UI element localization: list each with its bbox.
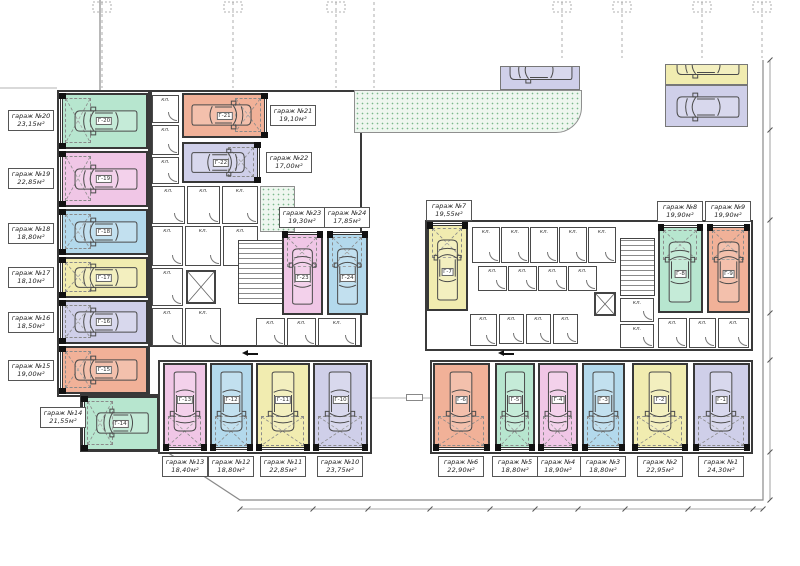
storage-room: кл. <box>152 308 183 346</box>
car-tag: Г-14 <box>112 419 128 427</box>
garage-name: гараж №24 <box>325 209 369 217</box>
garage-area: 19,90м² <box>706 211 750 219</box>
garage-stall-11: Г-11 <box>256 363 310 450</box>
garage-name: гараж №5 <box>493 458 537 466</box>
parking-floor-plan: кл.кл.кл.кл.кл.кл.кл.кл.кл.кл.кл.кл.кл.к… <box>0 0 800 566</box>
storage-room-label: кл. <box>153 127 178 133</box>
garage-label-10: гараж №10 23,75м² <box>317 456 363 477</box>
garage-stall-18: Г-18 <box>60 209 148 255</box>
storage-room: кл. <box>287 318 316 346</box>
garage-stall-21: Г-21 <box>182 93 267 138</box>
storage-room-label: кл. <box>319 320 355 326</box>
garage-area: 19,00м² <box>9 370 53 378</box>
storage-room: кл. <box>620 324 654 348</box>
garage-area: 18,10м² <box>9 277 53 285</box>
storage-room: кл. <box>318 318 356 346</box>
storage-room-label: кл. <box>288 320 315 326</box>
car-tag: Г-3 <box>597 396 610 404</box>
storage-room-label: кл. <box>560 229 586 235</box>
storage-room: кл. <box>185 308 221 346</box>
garage-label-19: гараж №19 22,85м² <box>8 168 54 189</box>
garage-stall-9: Г-9 <box>707 225 750 313</box>
garage-area: 22,85м² <box>261 466 305 474</box>
car-tag: Г-22 <box>213 158 229 166</box>
storage-room: кл. <box>530 227 558 263</box>
garage-stall-2: Г-2 <box>632 363 688 450</box>
garage-label-17: гараж №17 18,10м² <box>8 267 54 288</box>
garage-label-7: гараж №7 19,55м² <box>426 200 472 221</box>
car-tag: Г-12 <box>223 396 239 404</box>
storage-room: кл. <box>470 314 497 346</box>
storage-room: кл. <box>658 318 687 348</box>
car-tag: Г-7 <box>441 268 454 276</box>
storage-room: кл. <box>152 186 185 224</box>
garage-area: 23,15м² <box>9 120 53 128</box>
garage-name: гараж №8 <box>658 203 702 211</box>
garage-stall-12: Г-12 <box>210 363 253 450</box>
garage-stall-16: Г-16 <box>60 300 148 344</box>
garage-area: 19,90м² <box>658 211 702 219</box>
garage-area: 19,10м² <box>271 115 315 123</box>
garage-name: гараж №20 <box>9 112 53 120</box>
storage-room-label: кл. <box>621 300 653 306</box>
garage-area: 18,80м² <box>209 466 253 474</box>
garage-name: гараж №9 <box>706 203 750 211</box>
garage-stall-7: Г-7 <box>427 223 468 311</box>
car-top-view <box>675 64 741 80</box>
garage-stall-19: Г-19 <box>60 151 148 207</box>
garage-name: гараж №2 <box>638 458 682 466</box>
storage-room-label: кл. <box>153 188 184 194</box>
garage-area: 21,55м² <box>41 417 85 425</box>
garage-label-18: гараж №18 18,80м² <box>8 223 54 244</box>
car-top-view <box>508 66 574 85</box>
garage-stall-4: Г-4 <box>538 363 578 450</box>
garage-area: 19,30м² <box>280 217 324 225</box>
car-tag: Г-10 <box>332 396 348 404</box>
garage-stall-23: Г-23 <box>282 232 323 315</box>
storage-room-label: кл. <box>531 229 557 235</box>
storage-room: кл. <box>185 226 221 266</box>
storage-room-label: кл. <box>223 188 257 194</box>
storage-room: кл. <box>478 266 507 291</box>
storage-room-label: кл. <box>690 320 715 326</box>
garage-name: гараж №13 <box>163 458 207 466</box>
garage-name: гараж №12 <box>209 458 253 466</box>
car-tag: Г-9 <box>722 270 735 278</box>
garage-name: гараж №16 <box>9 314 53 322</box>
garage-label-6: гараж №6 22,90м² <box>438 456 484 477</box>
storage-room: кл. <box>553 314 578 344</box>
exit-arrow-icon <box>242 350 258 357</box>
garage-label-9: гараж №9 19,90м² <box>705 201 751 222</box>
storage-room-label: кл. <box>569 268 596 274</box>
car-tag: Г-16 <box>96 318 112 326</box>
garage-stall-13: Г-13 <box>163 363 207 450</box>
storage-room-label: кл. <box>479 268 506 274</box>
garage-name: гараж №3 <box>581 458 625 466</box>
storage-room-label: кл. <box>153 310 182 316</box>
garage-name: гараж №21 <box>271 107 315 115</box>
garage-label-22: гараж №22 17,00м² <box>266 152 312 173</box>
garage-label-15: гараж №15 19,00м² <box>8 360 54 381</box>
garage-area: 19,55м² <box>427 210 471 218</box>
garage-name: гараж №14 <box>41 409 85 417</box>
storage-room: кл. <box>152 125 179 155</box>
storage-room-label: кл. <box>188 188 219 194</box>
garage-name: гараж №22 <box>267 154 311 162</box>
storage-room: кл. <box>152 226 183 266</box>
garage-stall-15: Г-15 <box>60 346 148 394</box>
garage-stall-24: Г-24 <box>327 232 368 315</box>
garage-label-20: гараж №20 23,15м² <box>8 110 54 131</box>
outdoor-parking-spot <box>665 85 748 127</box>
storage-room-label: кл. <box>719 320 748 326</box>
car-tag: Г-24 <box>339 274 355 282</box>
garage-area: 22,95м² <box>638 466 682 474</box>
garage-area: 18,50м² <box>9 322 53 330</box>
storage-room-label: кл. <box>153 159 178 165</box>
storage-room: кл. <box>152 268 183 306</box>
storage-room: кл. <box>559 227 587 263</box>
garage-name: гараж №11 <box>261 458 305 466</box>
garage-label-24: гараж №24 17,85м² <box>324 207 370 228</box>
garage-name: гараж №18 <box>9 225 53 233</box>
storage-room-label: кл. <box>509 268 536 274</box>
garage-stall-8: Г-8 <box>658 225 703 313</box>
garage-label-2: гараж №2 22,95м² <box>637 456 683 477</box>
storage-room-label: кл. <box>153 270 182 276</box>
car-tag: Г-21 <box>216 111 232 119</box>
outdoor-parking-spot <box>665 64 748 85</box>
car-tag: Г-19 <box>96 175 112 183</box>
garage-label-8: гараж №8 19,90м² <box>657 201 703 222</box>
storage-room: кл. <box>222 186 258 224</box>
garage-label-16: гараж №16 18,50м² <box>8 312 54 333</box>
storage-room-label: кл. <box>186 228 220 234</box>
storage-room-label: кл. <box>186 310 220 316</box>
storage-room-label: кл. <box>224 228 257 234</box>
garage-stall-10: Г-10 <box>313 363 368 450</box>
garage-stall-17: Г-17 <box>60 257 148 298</box>
garage-label-3: гараж №3 18,80м² <box>580 456 626 477</box>
greenery-area <box>354 90 582 133</box>
storage-room-label: кл. <box>554 316 577 322</box>
car-top-view <box>675 91 741 123</box>
car-tag: Г-15 <box>96 366 112 374</box>
garage-stall-3: Г-3 <box>582 363 625 450</box>
car-tag: Г-5 <box>509 396 522 404</box>
garage-area: 18,80м² <box>581 466 625 474</box>
exit-arrow-icon <box>498 350 514 357</box>
garage-area: 17,00м² <box>267 162 311 170</box>
storage-room: кл. <box>152 95 179 123</box>
garage-name: гараж №7 <box>427 202 471 210</box>
garage-label-14: гараж №14 21,55м² <box>40 407 86 428</box>
garage-area: 17,85м² <box>325 217 369 225</box>
garage-name: гараж №6 <box>439 458 483 466</box>
car-tag: Г-18 <box>96 228 112 236</box>
garage-label-13: гараж №13 18,40м² <box>162 456 208 477</box>
storage-room-label: кл. <box>589 229 615 235</box>
storage-room: кл. <box>718 318 749 348</box>
storage-room-label: кл. <box>153 97 178 103</box>
storage-room: кл. <box>689 318 716 348</box>
garage-name: гараж №10 <box>318 458 362 466</box>
garage-name: гараж №19 <box>9 170 53 178</box>
storage-room-label: кл. <box>621 326 653 332</box>
garage-label-4: гараж №4 18,90м² <box>535 456 581 477</box>
storage-room: кл. <box>256 318 285 346</box>
storage-room-label: кл. <box>539 268 566 274</box>
car-tag: Г-23 <box>294 274 310 282</box>
storage-room: кл. <box>508 266 537 291</box>
car-tag: Г-20 <box>96 117 112 125</box>
staircase <box>238 240 286 304</box>
garage-name: гараж №4 <box>536 458 580 466</box>
car-tag: Г-13 <box>177 396 193 404</box>
garage-name: гараж №15 <box>9 362 53 370</box>
dimension-tag <box>406 394 423 401</box>
storage-room: кл. <box>538 266 567 291</box>
garage-area: 18,40м² <box>163 466 207 474</box>
garage-area: 24,30м² <box>699 466 743 474</box>
staircase <box>620 238 655 296</box>
garage-stall-22: Г-22 <box>182 142 260 183</box>
storage-room: кл. <box>568 266 597 291</box>
garage-area: 18,90м² <box>536 466 580 474</box>
garage-stall-14: Г-14 <box>82 396 159 451</box>
storage-room-label: кл. <box>257 320 284 326</box>
garage-name: гараж №23 <box>280 209 324 217</box>
garage-stall-20: Г-20 <box>60 93 148 149</box>
storage-room-label: кл. <box>527 316 550 322</box>
elevator-shaft <box>594 292 616 316</box>
garage-label-21: гараж №21 19,10м² <box>270 105 316 126</box>
storage-room: кл. <box>152 157 179 184</box>
garage-area: 22,90м² <box>439 466 483 474</box>
garage-label-5: гараж №5 18,80м² <box>492 456 538 477</box>
car-tag: Г-8 <box>674 270 687 278</box>
garage-area: 23,75м² <box>318 466 362 474</box>
garage-label-1: гараж №1 24,30м² <box>698 456 744 477</box>
storage-room-label: кл. <box>471 316 496 322</box>
car-tag: Г-11 <box>275 396 291 404</box>
storage-room: кл. <box>588 227 616 263</box>
elevator-shaft <box>186 270 216 304</box>
garage-label-23: гараж №23 19,30м² <box>279 207 325 228</box>
garage-label-11: гараж №11 22,85м² <box>260 456 306 477</box>
storage-room: кл. <box>620 298 654 322</box>
garage-name: гараж №17 <box>9 269 53 277</box>
garage-stall-5: Г-5 <box>495 363 535 450</box>
storage-room: кл. <box>187 186 220 224</box>
storage-room-label: кл. <box>153 228 182 234</box>
car-tag: Г-4 <box>552 396 565 404</box>
garage-label-12: гараж №12 18,80м² <box>208 456 254 477</box>
garage-stall-1: Г-1 <box>693 363 750 450</box>
storage-room-label: кл. <box>500 316 523 322</box>
storage-room: кл. <box>499 314 524 344</box>
car-tag: Г-6 <box>455 396 468 404</box>
garage-area: 18,80м² <box>9 233 53 241</box>
garage-area: 18,80м² <box>493 466 537 474</box>
car-tag: Г-1 <box>715 396 728 404</box>
storage-room: кл. <box>472 227 500 263</box>
storage-room-label: кл. <box>502 229 528 235</box>
car-tag: Г-2 <box>654 396 667 404</box>
storage-room: кл. <box>526 314 551 344</box>
storage-room-label: кл. <box>473 229 499 235</box>
storage-room-label: кл. <box>659 320 686 326</box>
garage-stall-6: Г-6 <box>433 363 490 450</box>
car-tag: Г-17 <box>96 273 112 281</box>
garage-area: 22,85м² <box>9 178 53 186</box>
storage-room: кл. <box>501 227 529 263</box>
outdoor-parking-spot <box>500 66 580 90</box>
garage-name: гараж №1 <box>699 458 743 466</box>
